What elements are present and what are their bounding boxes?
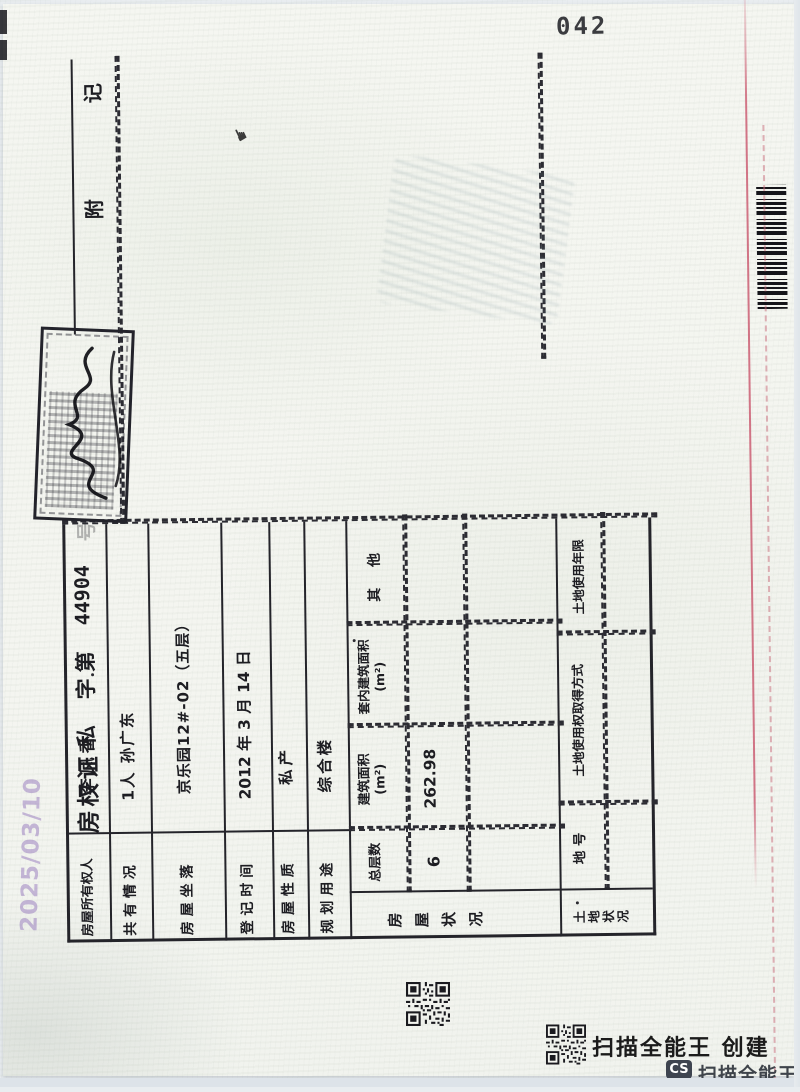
scan-edge-right (794, 0, 800, 1087)
remarks-top-border (70, 59, 75, 334)
other-value (418, 522, 419, 623)
row-label-house-nature: 房 屋 性 质 (277, 835, 298, 933)
house-nature-value: 私产 (273, 745, 295, 784)
inner-area-label: 套内建筑面积 (355, 639, 371, 714)
land-status-group-label: 土地状况 (572, 907, 648, 927)
col-header-other: 其 他 (366, 522, 385, 623)
table-border-right (62, 512, 657, 524)
table-grid-line (462, 513, 472, 891)
registration-date-value: 2012 年 3 月 14 日 (231, 650, 255, 799)
edge-binding-mark (0, 10, 7, 34)
scan-edge-bottom (0, 1078, 800, 1087)
handwritten-signature (33, 325, 135, 516)
barcode (756, 184, 788, 308)
scan-date-watermark: 2025/03/10 (16, 776, 46, 931)
qr-code-icon (546, 1024, 586, 1065)
pointing-hand-doodle-icon: ☛ (229, 122, 254, 144)
row-label-registration-date: 登 记 时 间 (236, 836, 257, 934)
planned-use-value: 综合楼 (312, 736, 335, 792)
inner-area-unit: (m²) (371, 661, 386, 691)
certificate-sheet: 2025/03/10 房权证 私 字第 44904 号 房屋所有权人 李凤香 共… (0, 0, 800, 1092)
table-border-top (62, 524, 70, 942)
col-header-total-floors: 总层数 (368, 832, 385, 891)
qr-code-icon (406, 982, 450, 1026)
faded-stamp-mark (375, 153, 575, 325)
rotated-document-stage: 2025/03/10 房权证 私 字第 44904 号 房屋所有权人 李凤香 共… (0, 0, 800, 1087)
row-label-location: 房 屋 坐 落 (176, 837, 197, 935)
cert-number: 44904 (69, 565, 94, 626)
owner-name-value: 李凤香 (72, 732, 98, 795)
floor-area-label: 建筑面积 (357, 753, 373, 805)
ink-speck (575, 901, 578, 904)
table-grid-line (105, 524, 112, 942)
page-number: 042 (556, 12, 609, 41)
table-border-left (67, 932, 656, 942)
ink-speck (352, 639, 355, 642)
table-grid-line (268, 522, 275, 940)
co-ownership-value: 1人 孙广东 (115, 710, 138, 800)
col-header-floor-area: 建筑面积 (m²) (356, 729, 390, 828)
inner-area-value (419, 627, 420, 725)
table-grid-line (600, 511, 610, 889)
total-floors-value: 6 (424, 831, 445, 890)
table-grid-line (220, 522, 227, 940)
table-grid-line (402, 514, 412, 892)
cert-zi-di: 字第 (69, 645, 100, 699)
floor-area-unit: (m²) (373, 763, 388, 794)
house-status-group-label: 房屋状况 (386, 907, 546, 930)
ink-speck (91, 673, 94, 676)
row-label-planned-use: 规 划 用 途 (316, 835, 337, 933)
table-grid-line (555, 518, 562, 936)
group-label-divider (349, 887, 652, 893)
row-label-owner: 房屋所有权人 (76, 838, 96, 936)
camscanner-created-caption: 扫描全能王 创建 (592, 1030, 770, 1062)
table-grid-line (345, 521, 352, 939)
col-header-land-acquisition: 土地使用权取得方式 (569, 637, 587, 803)
location-value: 京乐园12#-02（五层） (171, 615, 194, 794)
col-header-land-no: 地 号 (571, 807, 589, 889)
red-margin-line (743, 0, 756, 888)
col-header-land-tenure: 土地使用年限 (570, 520, 587, 633)
table-border-bottom (648, 517, 656, 935)
floor-area-value: 262.98 (420, 729, 441, 828)
remarks-title: 附记 (75, 0, 107, 219)
row-label-co-ownership: 共 有 情 况 (119, 837, 140, 935)
cs-logo-badge: CS (666, 1060, 692, 1079)
table-grid-line (303, 521, 310, 939)
edge-binding-mark (0, 40, 7, 60)
table-grid-line (147, 523, 154, 941)
col-header-inner-area: 套内建筑面积 (m²) (355, 627, 387, 725)
